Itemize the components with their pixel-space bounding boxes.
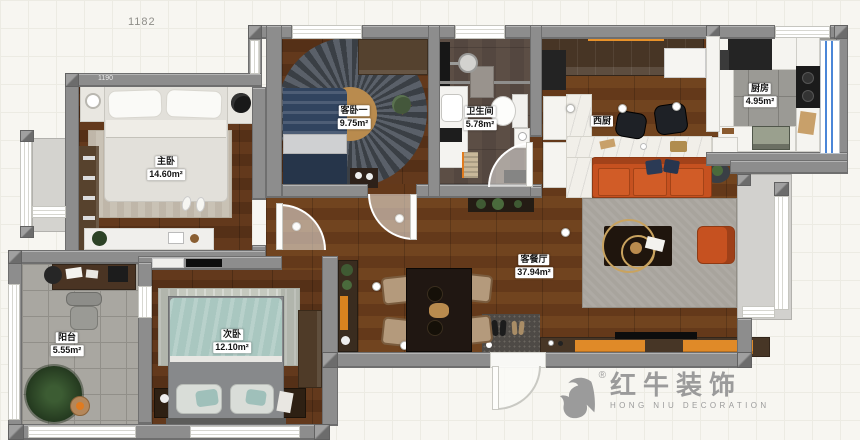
hanger — [83, 216, 95, 220]
room-area: 37.94m² — [515, 267, 553, 278]
wall — [65, 73, 79, 264]
cup — [355, 172, 362, 179]
decor-item — [722, 128, 734, 134]
office-chair-seat — [70, 306, 98, 330]
plant — [341, 264, 353, 276]
pillow — [166, 89, 223, 119]
wall — [252, 87, 266, 200]
room-area: 5.78m² — [464, 119, 497, 130]
kitchen-divider-counter — [706, 36, 720, 132]
room-name: 客卧一 — [338, 105, 369, 116]
window — [775, 26, 830, 38]
window — [28, 426, 136, 438]
brand-name-cn: 红牛装饰 — [610, 372, 770, 398]
decor-item — [548, 340, 554, 346]
wall-cabinet — [664, 48, 706, 78]
plant-pot — [92, 231, 107, 246]
plant — [342, 280, 352, 290]
room-label-west-kitchen: 西厨 — [591, 116, 613, 127]
wall-post — [20, 130, 34, 142]
bar-stool — [614, 110, 648, 141]
window — [774, 196, 789, 310]
shower-head — [458, 53, 478, 73]
table-lamp — [160, 394, 169, 403]
plant — [712, 165, 723, 176]
room-label-living: 客餐厅 37.94m² — [515, 254, 553, 278]
wall — [266, 25, 282, 198]
registered-mark: ® — [599, 370, 606, 381]
shoe — [512, 321, 518, 335]
room-name: 次卧 — [221, 329, 243, 340]
shoe — [499, 320, 506, 336]
spotlight — [372, 282, 381, 291]
centerpiece — [429, 303, 449, 318]
kitchen-appliance — [728, 38, 772, 70]
hanger — [83, 196, 95, 200]
sideboard-accent-orange — [340, 296, 348, 330]
placemat — [427, 320, 443, 336]
sink — [441, 94, 463, 122]
vanity-mat — [440, 128, 462, 142]
island-counter — [566, 136, 712, 158]
tall-cabinet — [543, 142, 568, 188]
tall-cabinet — [543, 96, 568, 140]
plant — [492, 198, 504, 210]
decor-item — [190, 234, 199, 243]
wall — [65, 73, 262, 87]
wall-tv — [186, 259, 222, 267]
wall-post — [20, 226, 34, 238]
kitchen-table — [752, 126, 790, 150]
bed-sheet-edge — [170, 356, 282, 362]
table-lamp — [85, 93, 101, 109]
room-area: 9.75m² — [338, 118, 371, 129]
room-label-balcony: 阳台 5.55m² — [51, 332, 84, 356]
room-name: 主卧 — [155, 156, 177, 167]
wall — [530, 25, 542, 137]
cup — [366, 173, 373, 180]
laptop — [108, 266, 128, 282]
wall-post — [737, 174, 751, 186]
wall-post — [834, 25, 848, 39]
wall-post — [8, 424, 24, 440]
room-label-master: 主卧 14.60m² — [147, 156, 185, 180]
room-label-kitchen: 厨房 4.95m² — [744, 83, 777, 107]
laundry-basket — [462, 152, 478, 178]
bathroom-door-leaf — [526, 142, 533, 187]
room-name: 卫生间 — [464, 106, 495, 117]
room-label-second: 次卧 12.10m² — [213, 329, 251, 353]
bed-throw — [106, 120, 226, 138]
window — [250, 40, 260, 74]
room-name: 厨房 — [749, 83, 771, 94]
wall-post — [737, 352, 752, 368]
kitchen-window-blue — [820, 40, 840, 154]
guest-bed-foot — [283, 154, 347, 184]
room-name: 阳台 — [56, 332, 78, 343]
decor-item — [341, 336, 350, 345]
bar-stool — [653, 102, 689, 136]
room-area: 12.10m² — [213, 342, 251, 353]
cutting-board — [798, 111, 817, 135]
room-area: 14.60m² — [147, 169, 185, 180]
shower-panel — [440, 42, 450, 92]
window — [32, 206, 66, 218]
spotlight — [566, 104, 575, 113]
window — [8, 284, 20, 420]
accent-pillow — [245, 389, 267, 407]
pillow — [108, 89, 163, 119]
room-area: 4.95m² — [744, 96, 777, 107]
wall-post — [322, 352, 338, 368]
plant — [476, 199, 486, 209]
plate — [640, 143, 647, 150]
bread-basket — [670, 141, 687, 152]
fridge — [541, 50, 566, 90]
sofa-pillow — [663, 159, 680, 174]
decor-item — [168, 232, 184, 244]
room-name: 客餐厅 — [518, 254, 549, 265]
plant — [392, 95, 411, 114]
wall — [505, 25, 775, 39]
stool — [44, 266, 62, 284]
wall — [428, 25, 440, 198]
room-label-bathroom: 卫生间 5.78m² — [464, 106, 497, 130]
room-label-guest: 客卧一 9.75m² — [338, 105, 371, 129]
brand-logo: ® 红牛装饰 HONG NIU DECORATION — [556, 372, 770, 422]
dimension-label-wall: 1190 — [98, 75, 113, 82]
wall-post — [8, 250, 22, 264]
drain — [518, 132, 527, 141]
burner — [802, 72, 814, 84]
spotlight — [618, 104, 627, 113]
wall-post — [314, 424, 330, 440]
window — [292, 25, 362, 39]
wall-post — [65, 73, 79, 87]
wall — [530, 186, 542, 198]
paper — [86, 269, 99, 278]
sofa-cushion — [598, 168, 630, 196]
entry-door-leaf — [492, 366, 499, 410]
master-door-leaf — [276, 203, 283, 250]
hanger — [83, 176, 95, 180]
hanger — [83, 156, 95, 160]
wall — [730, 160, 848, 174]
spotlight — [561, 228, 570, 237]
bull-logo-icon: ® — [556, 372, 602, 422]
wall — [322, 256, 338, 426]
brand-name-en: HONG NIU DECORATION — [610, 401, 770, 410]
wall-post — [774, 182, 789, 196]
sofa-pillow — [645, 159, 663, 175]
guest-door-leaf — [410, 194, 417, 240]
plant — [514, 200, 522, 208]
burner — [802, 90, 814, 102]
tray — [630, 242, 642, 254]
dimension-label-top: 1182 — [128, 16, 156, 28]
office-chair-back — [66, 292, 102, 306]
guest-cabinet — [358, 39, 428, 75]
entry-door-swing — [496, 366, 541, 410]
room-name: 西厨 — [591, 116, 613, 127]
guest-bed-pillow — [283, 134, 347, 154]
tv — [615, 332, 697, 339]
window — [20, 140, 32, 228]
accent-pillow — [195, 389, 219, 408]
decor-item — [76, 402, 84, 410]
spotlight — [672, 102, 681, 111]
window — [742, 306, 775, 318]
room-area: 5.55m² — [51, 345, 84, 356]
sliding-door — [138, 286, 152, 318]
wardrobe — [298, 310, 322, 388]
wall-post — [248, 25, 262, 39]
window — [190, 426, 300, 438]
floor-plan-canvas: 1182 — [0, 0, 860, 440]
wall — [282, 184, 368, 198]
placemat — [427, 286, 443, 302]
decor-item — [558, 341, 563, 346]
wall — [362, 25, 455, 39]
table-lamp — [231, 93, 251, 113]
armchair — [697, 226, 735, 264]
window — [455, 25, 505, 39]
wall-shelf — [152, 258, 184, 268]
